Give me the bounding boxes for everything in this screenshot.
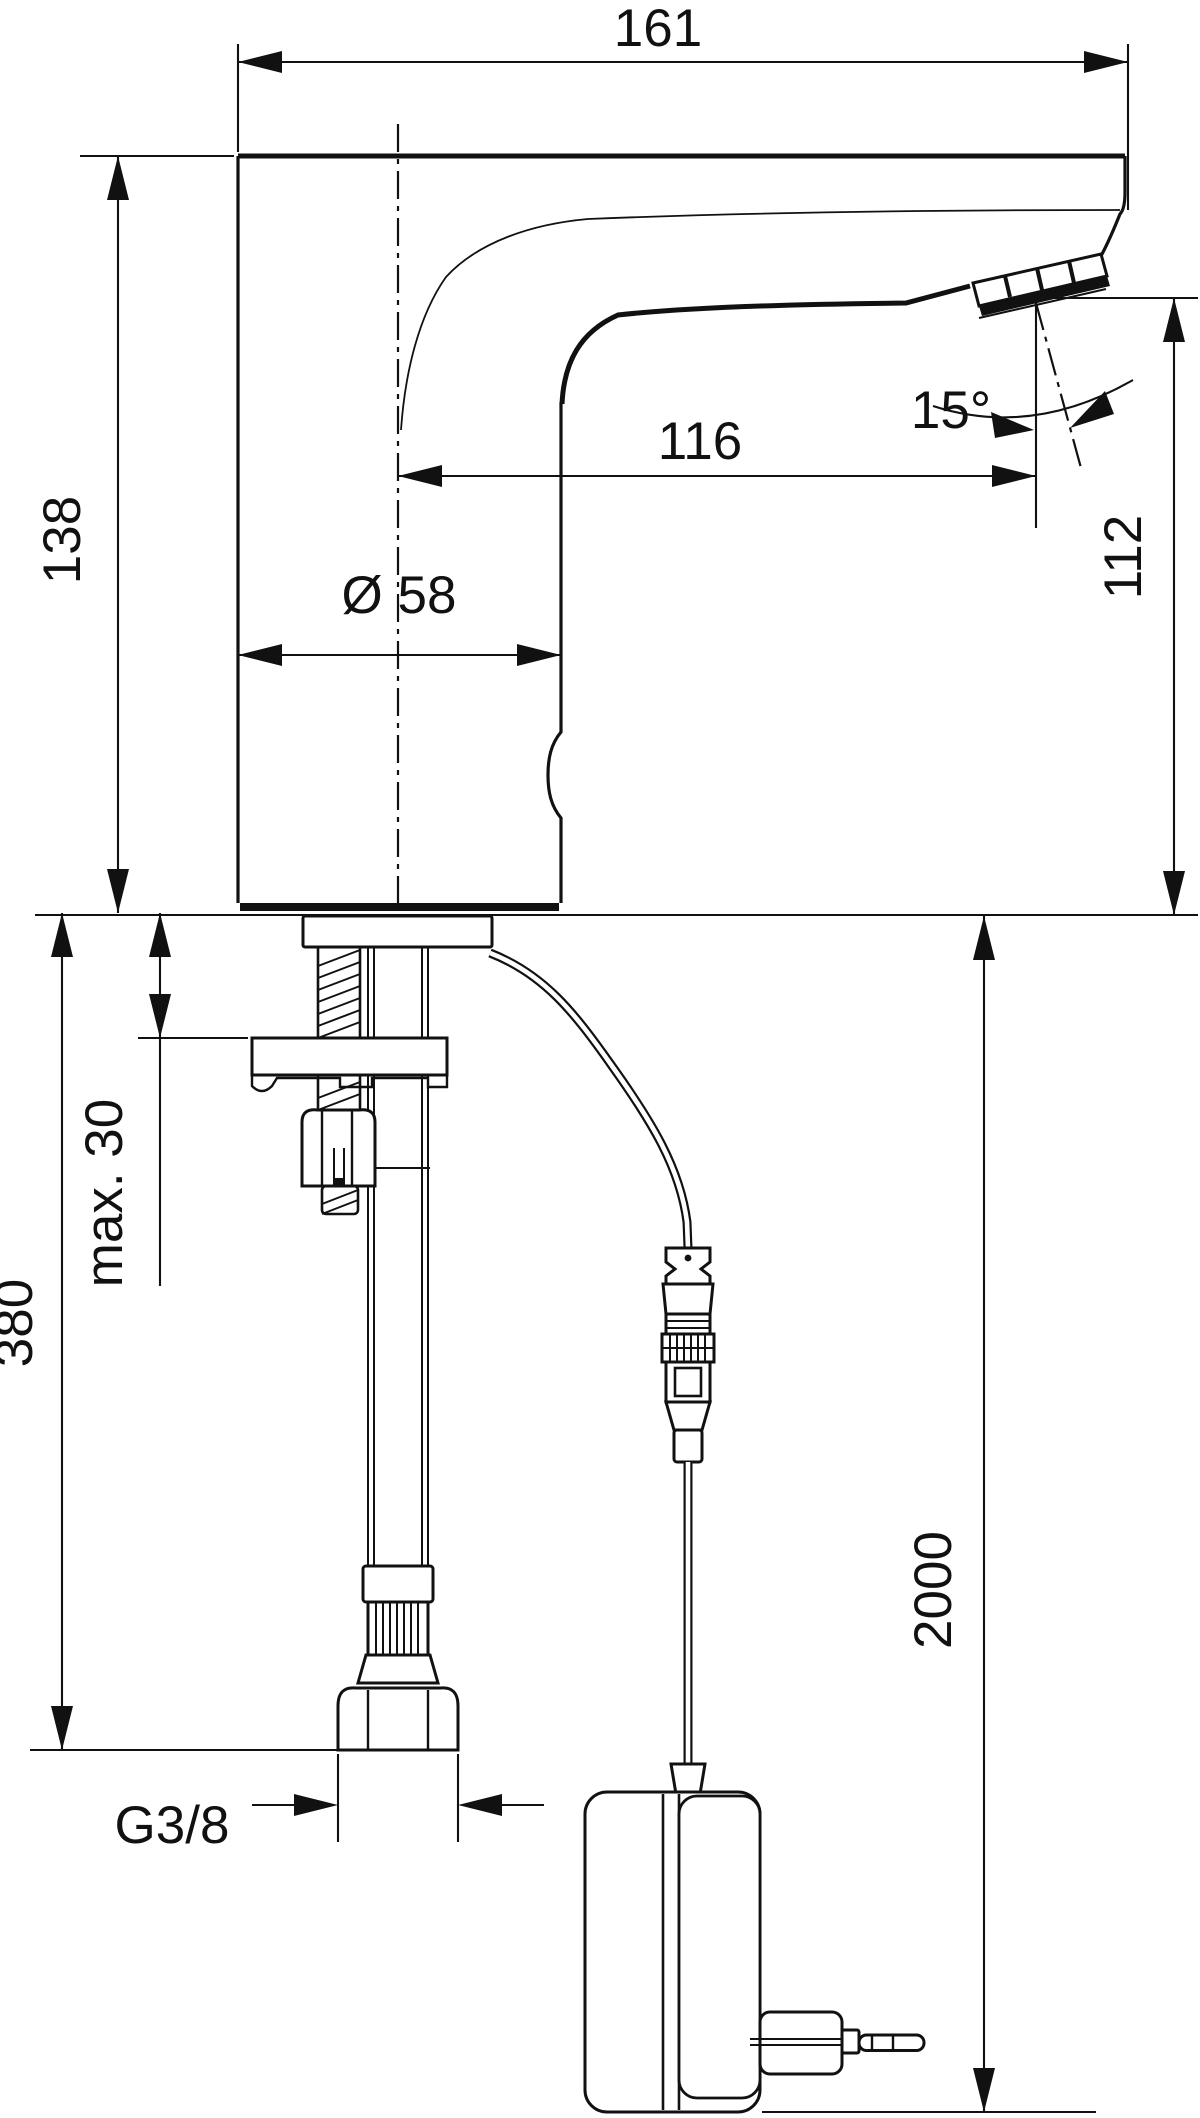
pin-base [760,2012,842,2074]
fixing-washer [252,1038,447,1091]
dim-outlet-height: 112 [1094,515,1153,600]
cable-strain-relief [671,1764,705,1794]
pin-collar [842,2030,859,2053]
faucet-outline [238,124,1125,907]
dim-power-cable-length: 2000 [904,1531,963,1649]
plug-pin [859,2035,924,2051]
spout-top-contour [401,210,1120,430]
dim-body-diameter: Ø 58 [342,566,457,625]
technical-drawing-page: 161 15° 116 138 Ø 58 112 max. 30 380 200… [0,0,1200,2118]
dim-height-to-top: 138 [33,496,92,584]
dim-spout-reach: 116 [658,412,743,471]
dim-spout-angle: 15° [911,381,991,440]
power-supply-plug [585,1764,924,2112]
base-collar [303,916,492,947]
electrical-parts [490,953,924,2112]
dim-max-deck-thickness: max. 30 [75,1099,134,1288]
spout-underside [562,286,970,404]
g38-nut [338,1688,458,1750]
dim-overall-depth: 161 [614,0,702,58]
cable-connector [662,1248,714,1462]
below-deck-assembly [252,916,492,1750]
dim-supply-hose-drop: 380 [0,1279,44,1367]
dim-supply-thread: G3/8 [115,1796,230,1855]
hose-fitting [338,1566,458,1750]
technical-drawing: 161 15° 116 138 Ø 58 112 max. 30 380 200… [0,0,1200,2118]
dimension-labels: 161 15° 116 138 Ø 58 112 max. 30 380 200… [0,0,1153,1855]
fixing-nut [302,1110,375,1214]
spout-tip-edge [1101,156,1125,256]
sensor-cable-upper [490,953,688,1248]
plug-face [679,1796,760,2098]
aerator [973,254,1110,318]
